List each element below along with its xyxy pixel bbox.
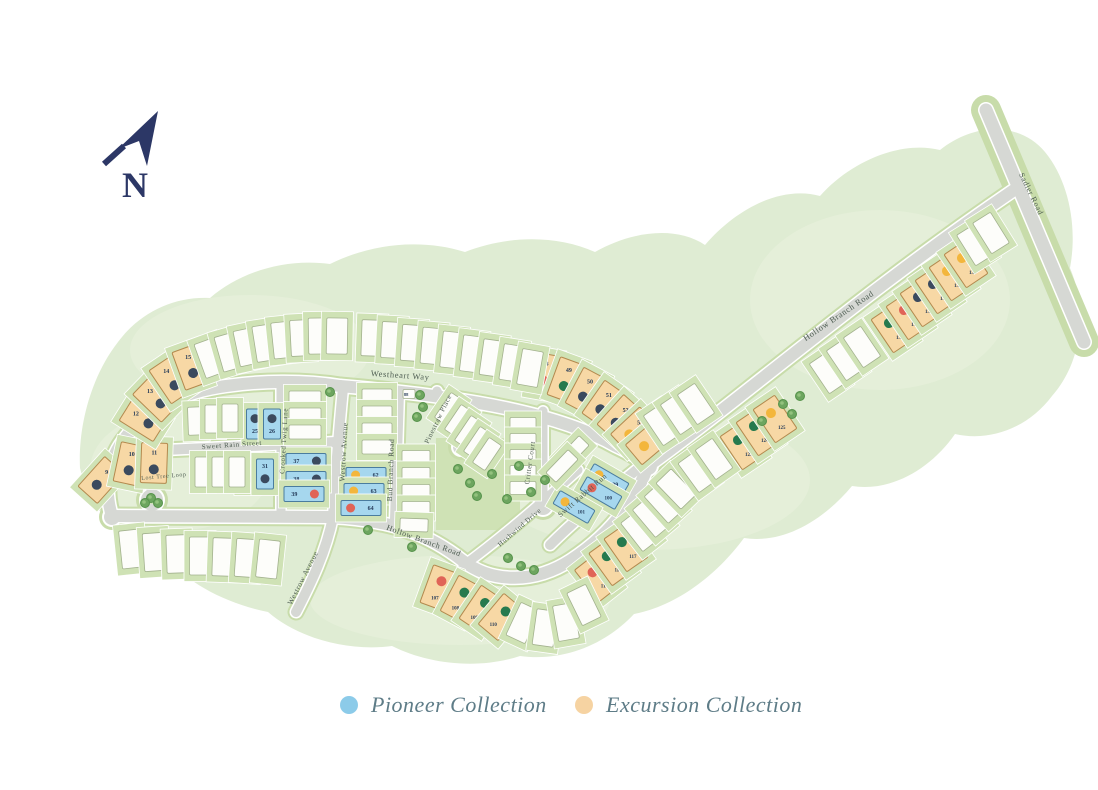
lot-number: 14	[163, 369, 169, 375]
tree-icon	[531, 567, 535, 571]
lot-parcel	[229, 457, 245, 487]
lot-number: 25	[252, 429, 258, 435]
lot-number: 39	[291, 492, 297, 498]
lot-number: 51	[606, 393, 612, 399]
lot-number: 110	[490, 623, 498, 628]
status-dot-navy	[312, 457, 321, 466]
legend: Pioneer Collection Excursion Collection	[0, 688, 1098, 724]
tree-icon	[455, 466, 459, 470]
excursion-dot-icon	[575, 696, 593, 714]
tree-icon	[542, 477, 546, 481]
lot-88[interactable]: 88	[403, 390, 415, 399]
available-lot[interactable]	[249, 532, 286, 586]
lot-number: 37	[293, 459, 299, 465]
tree-icon	[516, 463, 520, 467]
available-lot[interactable]	[284, 419, 327, 446]
tree-icon	[155, 500, 159, 504]
lot-number: 11	[151, 451, 157, 457]
legend-item-excursion: Excursion Collection	[575, 688, 802, 722]
available-lot[interactable]	[224, 451, 251, 494]
lot-parcel	[326, 318, 348, 354]
lot-parcel	[256, 539, 281, 579]
north-label: N	[122, 165, 148, 205]
lot-number: 125	[778, 426, 786, 431]
tree-icon	[148, 495, 152, 499]
available-lot[interactable]	[217, 398, 244, 439]
lot-number: 117	[629, 555, 637, 560]
tree-icon	[142, 500, 146, 504]
lot-31[interactable]: 31	[251, 453, 279, 496]
tree-icon	[797, 393, 801, 397]
pioneer-dot-icon	[340, 696, 358, 714]
status-dot-red	[346, 504, 355, 513]
status-dot-red	[310, 490, 319, 499]
lot-number: 26	[269, 429, 275, 435]
north-arrow-icon: N	[104, 111, 158, 205]
lot-parcel	[222, 404, 238, 432]
cul-de-sac	[104, 509, 120, 525]
available-lot[interactable]	[321, 311, 354, 361]
legend-label-pioneer: Pioneer Collection	[371, 692, 547, 718]
site-plan: 9101112131415252630313738394849505152535…	[0, 0, 1098, 790]
tree-icon	[414, 414, 418, 418]
status-dot-navy	[261, 474, 270, 483]
tree-icon	[528, 489, 532, 493]
lot-number: 101	[578, 511, 586, 516]
tree-icon	[467, 480, 471, 484]
lot-64[interactable]: 64	[336, 494, 387, 522]
lot-number: 13	[147, 389, 153, 395]
tree-icon	[365, 527, 369, 531]
legend-item-pioneer: Pioneer Collection	[340, 688, 547, 722]
tree-icon	[409, 544, 413, 548]
lot-number: 50	[587, 380, 593, 386]
tree-icon	[518, 563, 522, 567]
lot-number: 10	[129, 452, 135, 458]
tree-icon	[789, 411, 793, 415]
lot-number: 9	[105, 470, 108, 476]
legend-label-excursion: Excursion Collection	[606, 692, 802, 718]
tree-icon	[759, 418, 763, 422]
lot-number: 64	[368, 506, 374, 512]
tree-icon	[417, 392, 421, 396]
status-dot-navy	[268, 414, 277, 423]
tree-icon	[474, 493, 478, 497]
lot-parcel	[289, 425, 321, 439]
lot-number: 88	[404, 392, 409, 397]
tree-icon	[780, 401, 784, 405]
tree-icon	[504, 496, 508, 500]
site-plan-page: 9101112131415252630313738394849505152535…	[0, 0, 1098, 790]
lot-number: 107	[431, 596, 439, 601]
lot-number: 15	[185, 355, 191, 361]
lot-number: 100	[605, 497, 613, 502]
tree-icon	[420, 404, 424, 408]
lot-number: 49	[566, 368, 572, 374]
lot-number: 31	[262, 464, 268, 470]
tree-icon	[489, 471, 493, 475]
tree-icon	[505, 555, 509, 559]
lot-39[interactable]: 39	[279, 480, 330, 508]
tree-icon	[327, 389, 331, 393]
lot-number: 12	[133, 412, 139, 418]
